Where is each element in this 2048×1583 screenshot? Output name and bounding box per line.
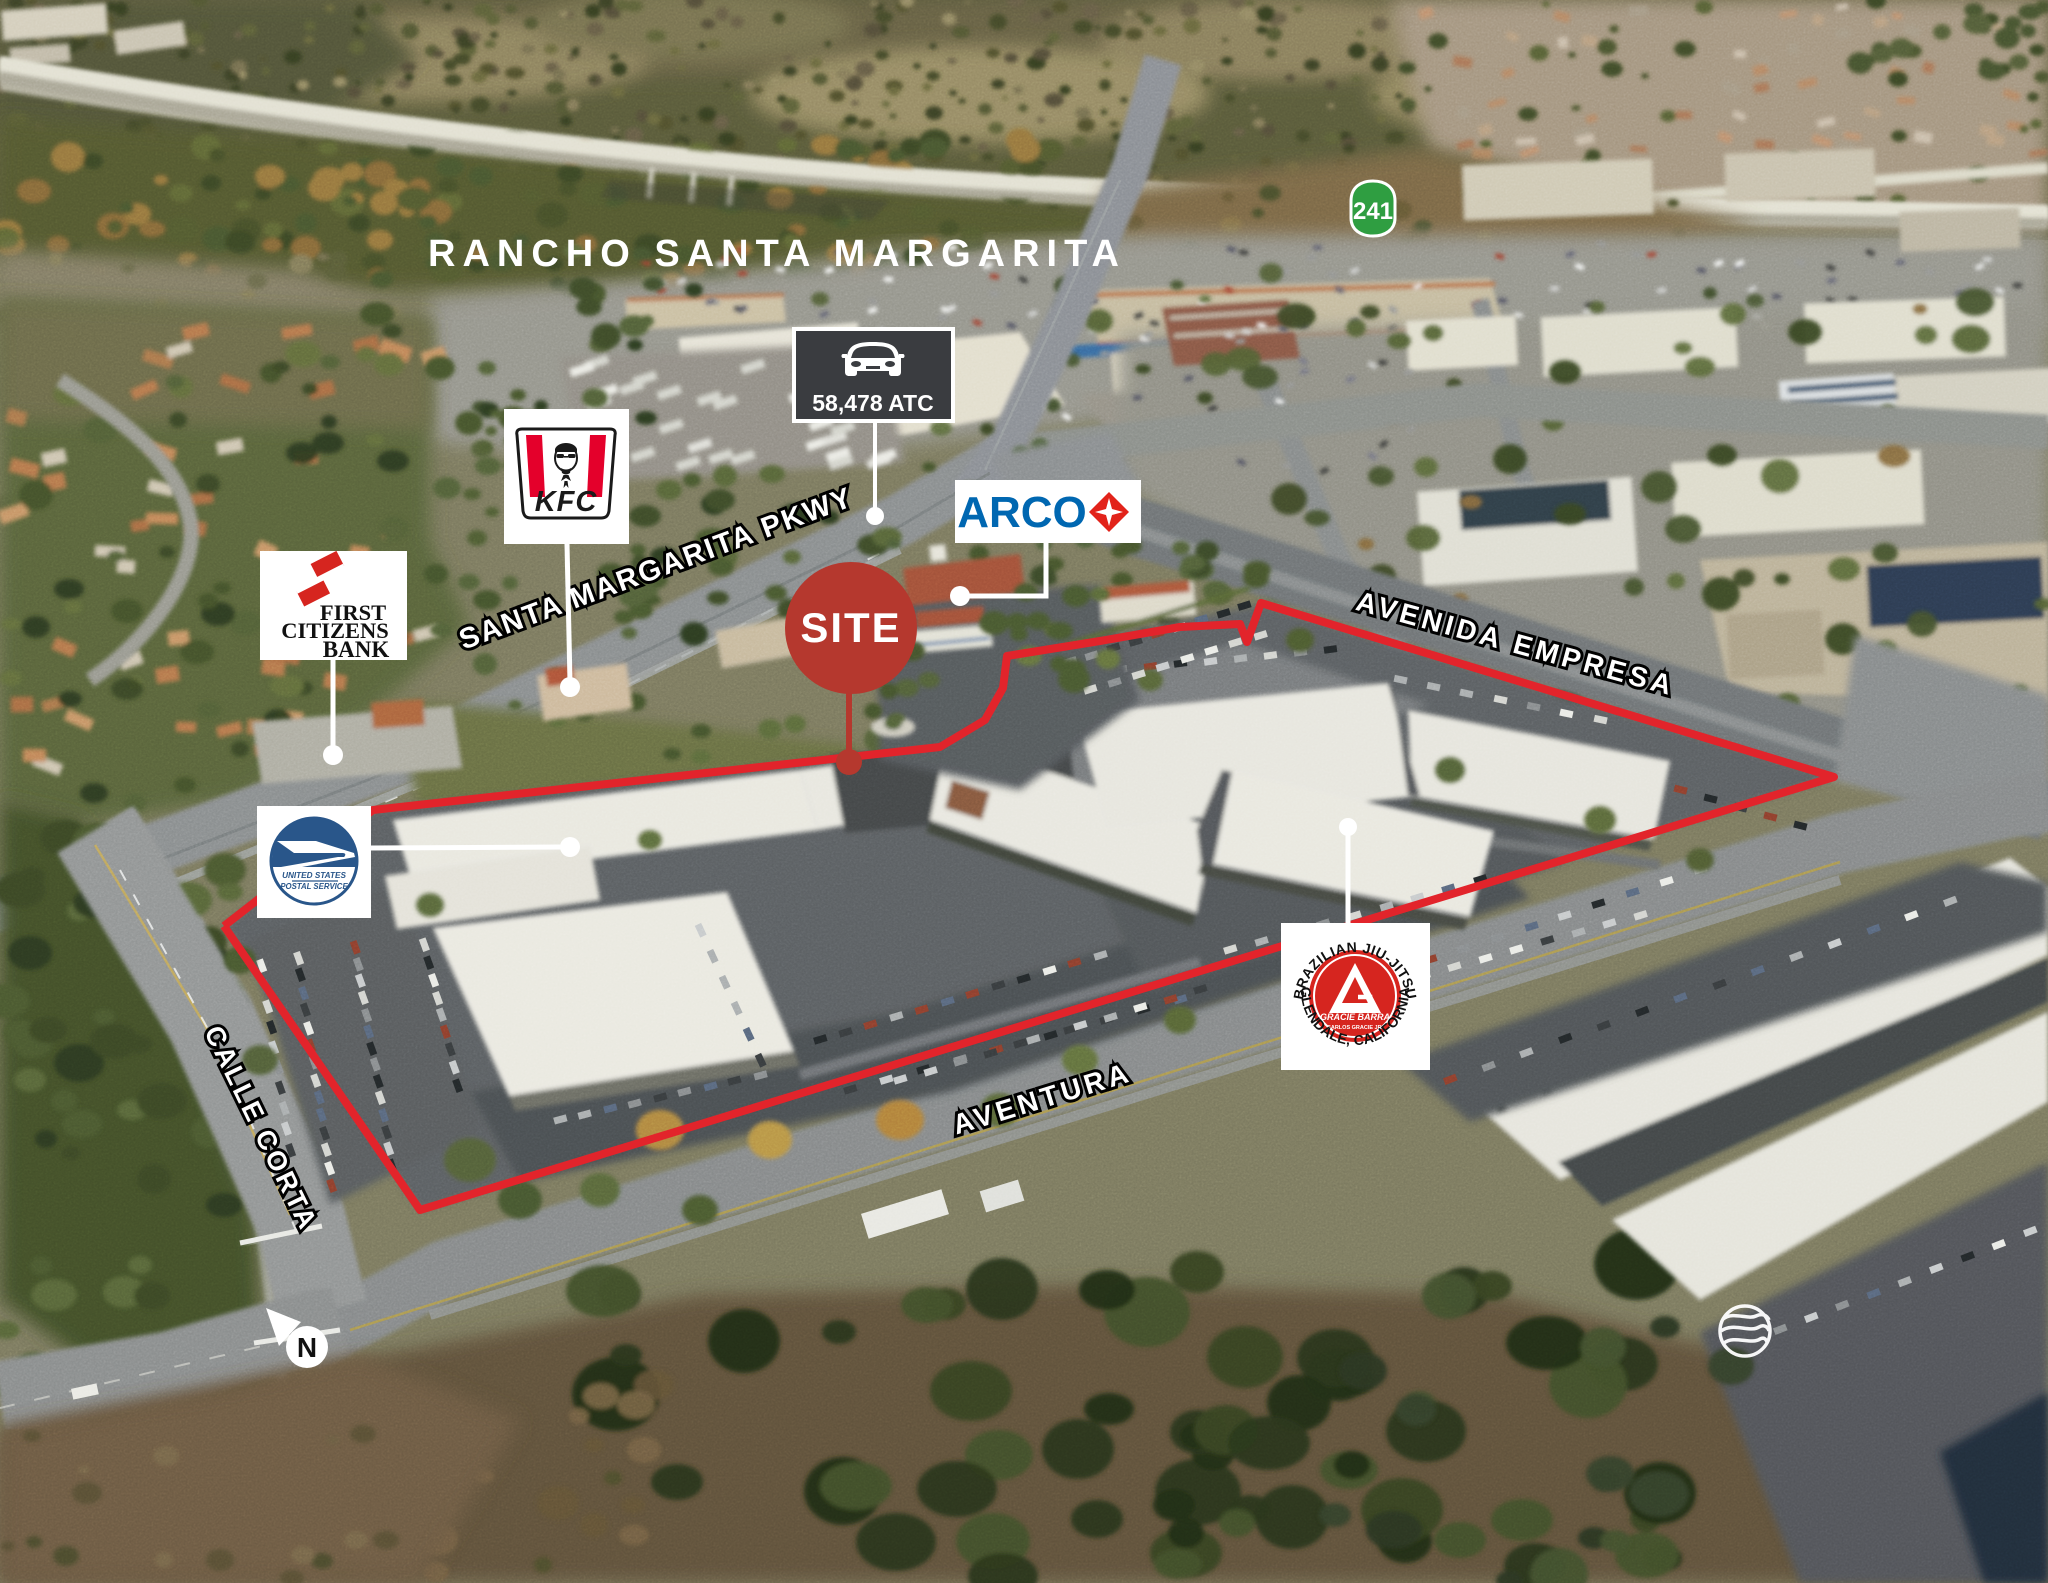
svg-text:POSTAL SERVICE: POSTAL SERVICE: [280, 882, 348, 891]
svg-text:UNITED STATES: UNITED STATES: [282, 871, 346, 880]
svg-text:SITE: SITE: [800, 604, 901, 651]
svg-text:GRACIE BARRA: GRACIE BARRA: [1320, 1012, 1390, 1022]
svg-text:58,478 ATC: 58,478 ATC: [812, 390, 933, 416]
svg-text:241: 241: [1353, 198, 1393, 225]
svg-text:N: N: [297, 1332, 317, 1363]
svg-text:BANK: BANK: [323, 637, 390, 662]
svg-text:RANCHO SANTA MARGARITA: RANCHO SANTA MARGARITA: [428, 233, 1126, 275]
svg-text:ARCO: ARCO: [957, 488, 1087, 537]
svg-text:KFC: KFC: [535, 486, 598, 518]
